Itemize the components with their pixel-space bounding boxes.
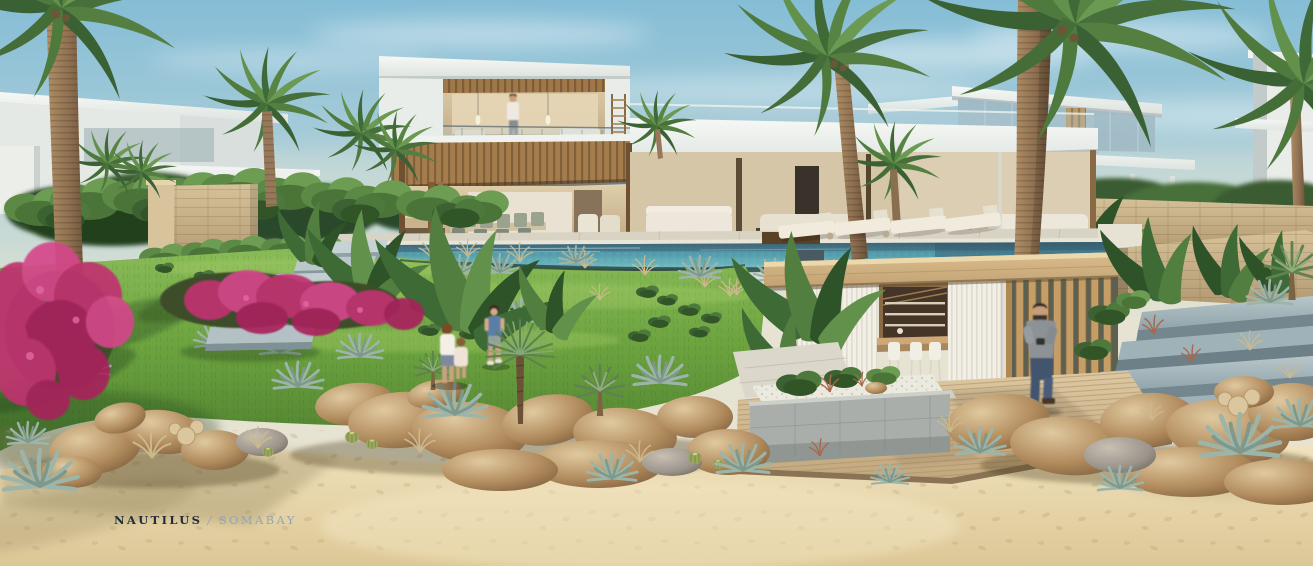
watermark-brand: NAUTILUS: [114, 513, 202, 527]
watermark-location: SOMABAY: [219, 513, 297, 527]
watermark: NAUTILUS/SOMABAY: [114, 513, 297, 527]
rendering-canvas: NAUTILUS/SOMABAY: [0, 0, 1313, 566]
watermark-separator: /: [207, 513, 213, 527]
stone-planter: [748, 366, 956, 464]
